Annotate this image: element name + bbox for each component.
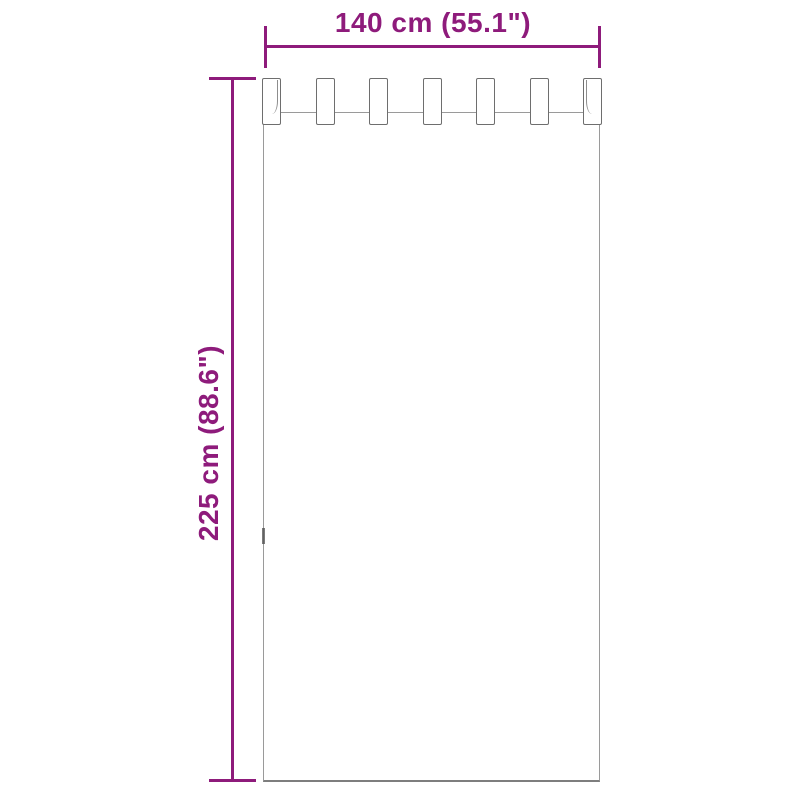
height-dimension-tick-top bbox=[209, 77, 256, 80]
curtain-tab bbox=[583, 78, 602, 125]
curtain-tab bbox=[476, 78, 495, 125]
curtain-tab bbox=[530, 78, 549, 125]
curtain-tabs bbox=[262, 78, 602, 125]
width-dimension-line bbox=[265, 45, 601, 48]
product-dimension-diagram: 140 cm (55.1") 225 cm (88.6") bbox=[0, 0, 800, 800]
height-dimension-label: 225 cm (88.6") bbox=[193, 345, 225, 541]
curtain-edge-shadow bbox=[262, 528, 265, 544]
curtain-tab bbox=[316, 78, 335, 125]
width-dimension-tick-right bbox=[598, 26, 601, 68]
width-dimension-tick-left bbox=[264, 26, 267, 68]
curtain-panel bbox=[263, 112, 600, 782]
curtain-tab bbox=[423, 78, 442, 125]
curtain-tab bbox=[369, 78, 388, 125]
width-dimension-label: 140 cm (55.1") bbox=[265, 8, 601, 38]
height-dimension-tick-bottom bbox=[209, 779, 256, 782]
curtain-tab bbox=[262, 78, 281, 125]
height-dimension-line bbox=[231, 77, 234, 782]
